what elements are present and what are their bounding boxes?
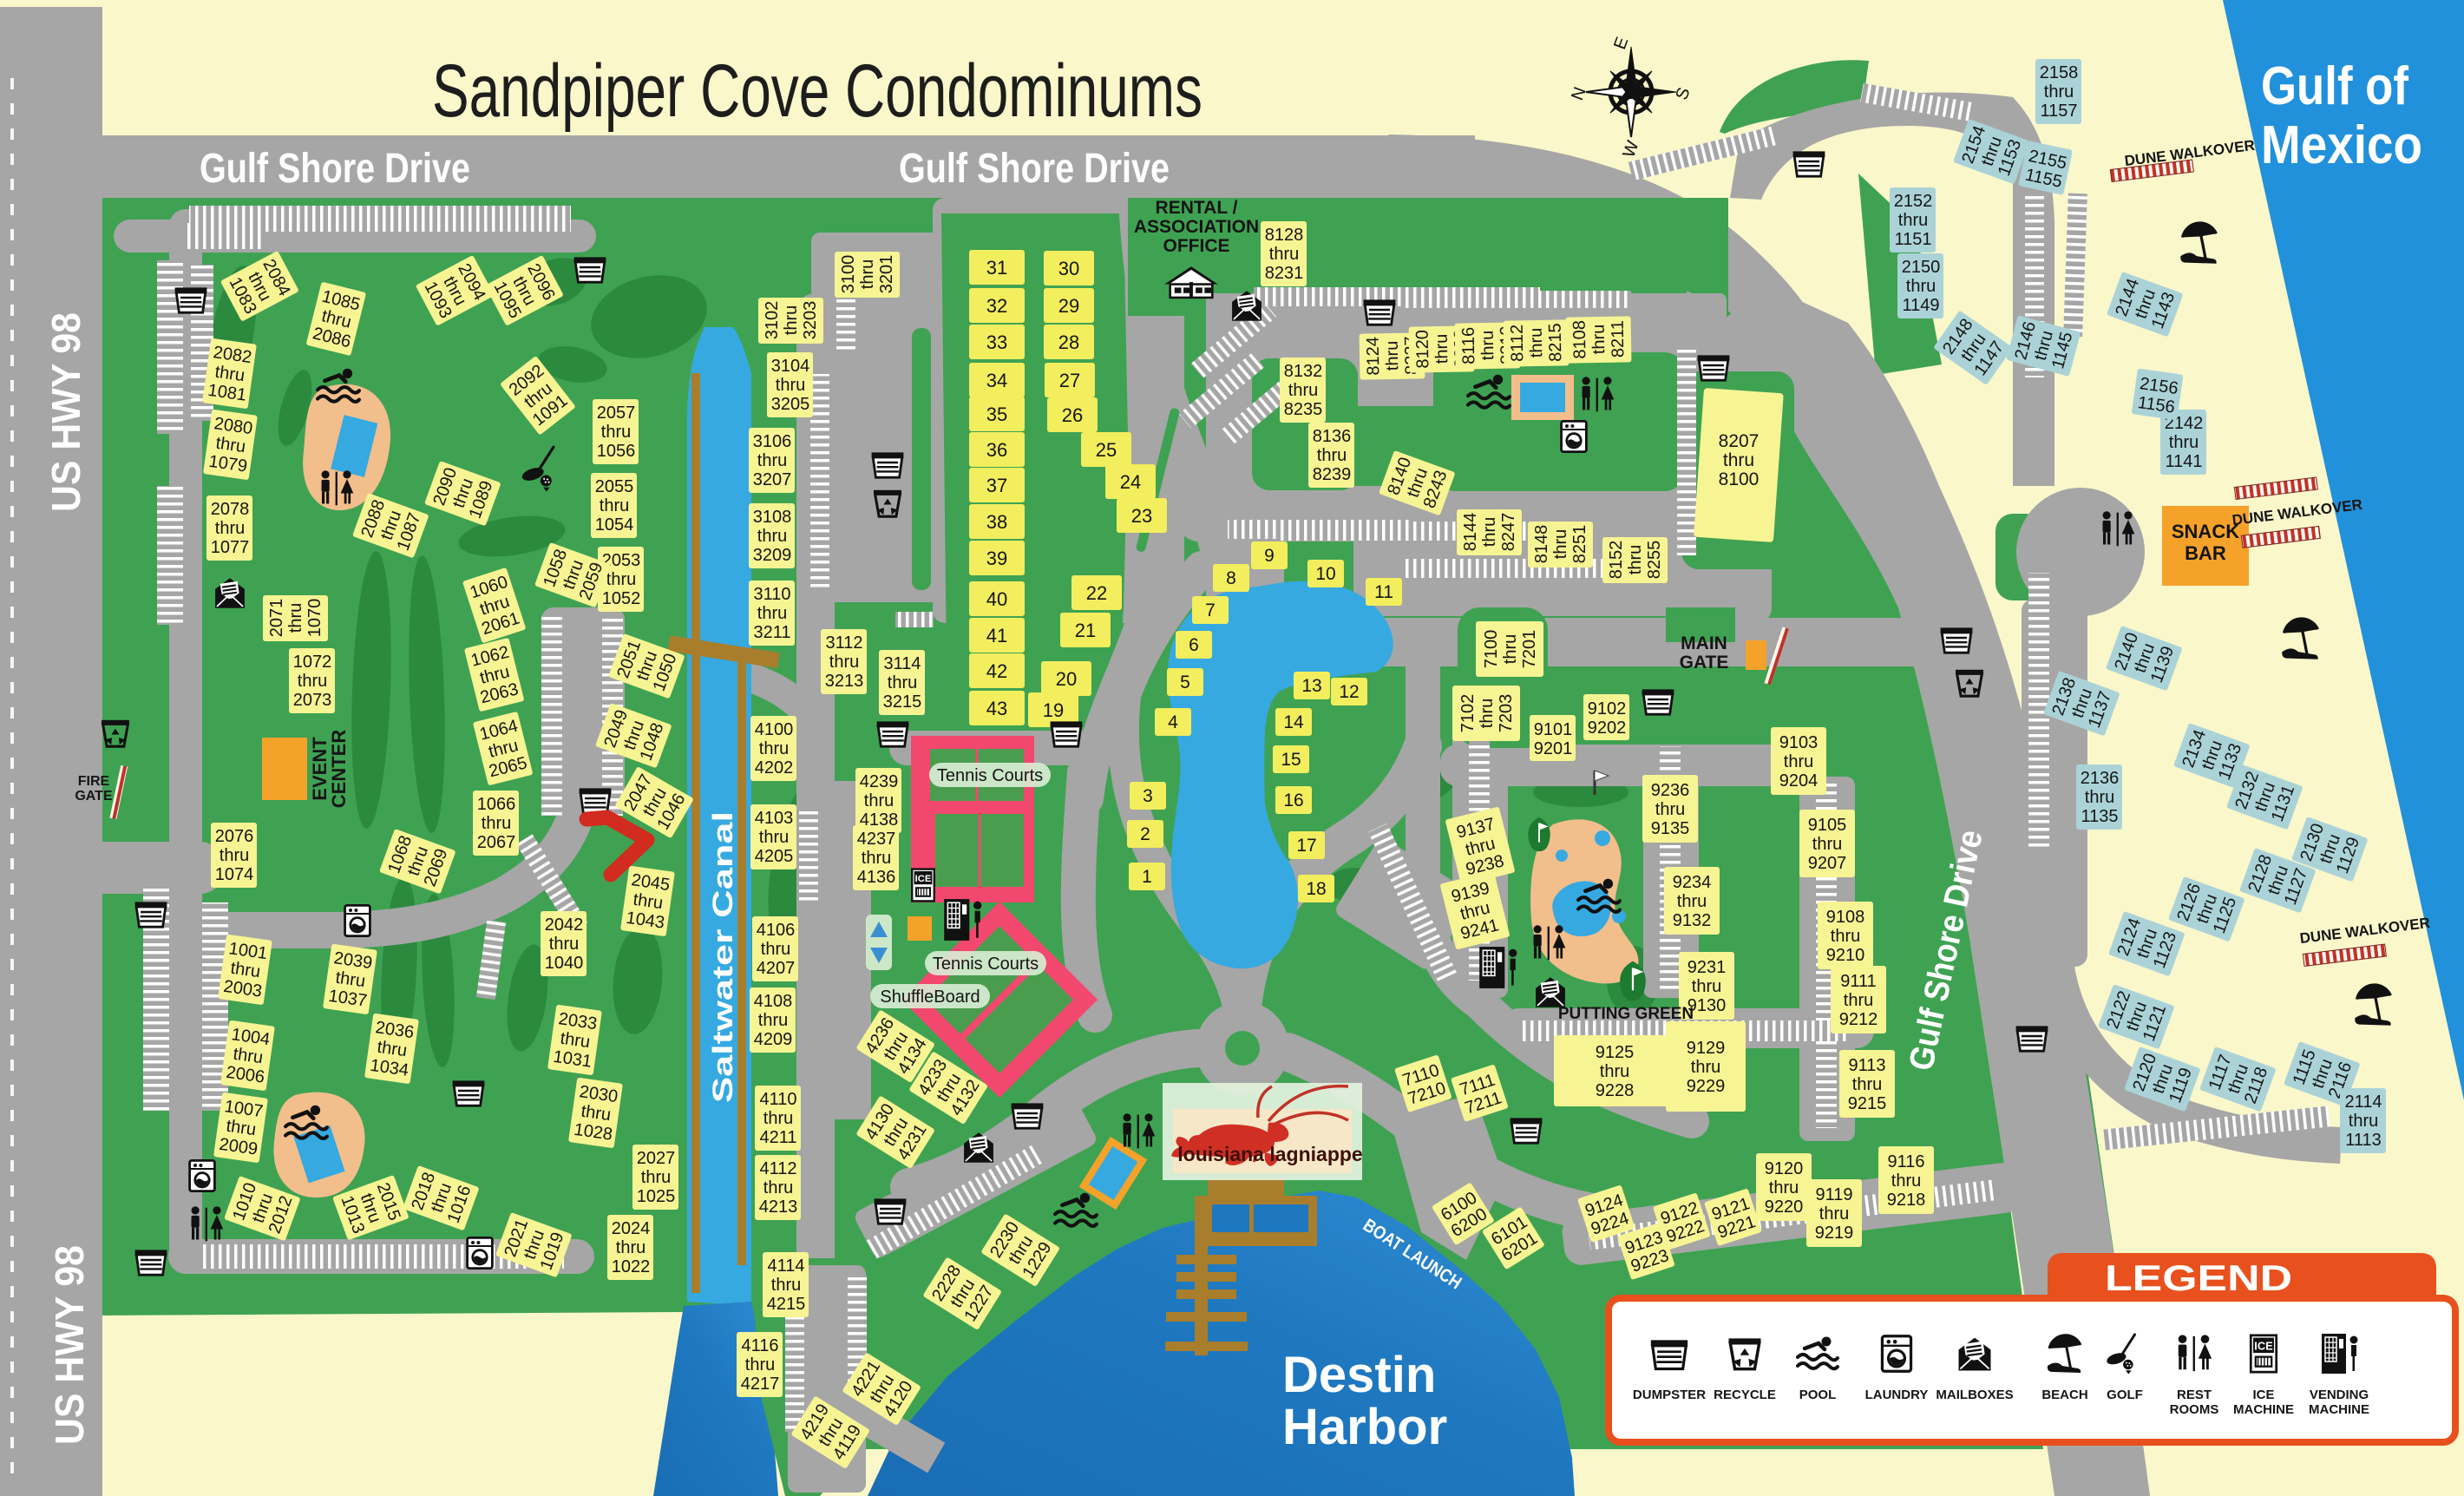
svg-text:13: 13 — [1301, 676, 1321, 696]
svg-text:3100: 3100 — [839, 255, 858, 294]
svg-text:9132: 9132 — [1673, 911, 1712, 930]
svg-text:4237: 4237 — [857, 830, 896, 849]
svg-text:3110: 3110 — [753, 585, 790, 604]
svg-text:9105: 9105 — [1808, 816, 1847, 835]
svg-text:2073: 2073 — [293, 691, 332, 710]
svg-text:1074: 1074 — [215, 865, 254, 884]
svg-text:9135: 9135 — [1651, 819, 1690, 838]
svg-text:2042: 2042 — [545, 915, 584, 935]
svg-text:9111: 9111 — [1840, 972, 1877, 991]
svg-text:4112: 4112 — [759, 1159, 796, 1178]
svg-text:thru: thru — [1288, 381, 1318, 400]
svg-text:7: 7 — [1205, 600, 1216, 620]
svg-text:14: 14 — [1283, 712, 1304, 732]
svg-text:ASSOCIATION: ASSOCIATION — [1134, 217, 1259, 237]
svg-text:4239: 4239 — [860, 772, 899, 791]
svg-text:thru: thru — [1812, 835, 1842, 854]
svg-text:3: 3 — [1143, 786, 1153, 806]
svg-text:thru: thru — [1769, 1178, 1799, 1197]
svg-text:9113: 9113 — [1848, 1056, 1885, 1075]
svg-text:thru: thru — [858, 259, 877, 289]
svg-text:2114: 2114 — [2344, 1092, 2382, 1112]
svg-text:9102: 9102 — [1588, 699, 1627, 718]
svg-text:2067: 2067 — [477, 833, 516, 852]
svg-text:Destin: Destin — [1282, 1347, 1436, 1403]
svg-text:thru: thru — [862, 849, 891, 868]
svg-text:DUMPSTER: DUMPSTER — [1633, 1388, 1706, 1402]
svg-text:thru: thru — [1891, 1171, 1921, 1191]
svg-text:4: 4 — [1168, 712, 1178, 732]
svg-text:thru: thru — [1844, 991, 1873, 1010]
svg-text:36: 36 — [986, 439, 1007, 461]
svg-text:3211: 3211 — [753, 623, 790, 642]
svg-text:thru: thru — [220, 846, 249, 865]
svg-text:thru: thru — [641, 1168, 671, 1187]
svg-text:thru: thru — [1626, 545, 1645, 574]
svg-text:3114: 3114 — [883, 654, 921, 673]
svg-text:43: 43 — [986, 698, 1007, 719]
svg-text:33: 33 — [986, 331, 1007, 353]
svg-text:thru: thru — [771, 1276, 801, 1295]
svg-text:19: 19 — [1043, 699, 1064, 721]
svg-text:thru: thru — [1655, 800, 1685, 819]
svg-text:8211: 8211 — [1609, 320, 1628, 358]
svg-text:4116: 4116 — [741, 1336, 778, 1355]
svg-text:26: 26 — [1062, 404, 1083, 426]
svg-text:thru: thru — [1501, 634, 1520, 664]
svg-text:3215: 3215 — [883, 692, 922, 712]
svg-text:thru: thru — [1692, 977, 1721, 996]
svg-text:MAIN: MAIN — [1681, 633, 1727, 653]
svg-text:3205: 3205 — [771, 395, 810, 414]
svg-text:2024: 2024 — [612, 1219, 651, 1238]
svg-text:thru: thru — [1852, 1075, 1882, 1094]
svg-text:thru: thru — [888, 673, 917, 692]
svg-text:8207: 8207 — [1719, 431, 1760, 451]
svg-text:9218: 9218 — [1887, 1191, 1926, 1210]
svg-text:RENTAL /: RENTAL / — [1156, 198, 1238, 218]
svg-text:Mexico: Mexico — [2261, 115, 2422, 175]
svg-text:thru: thru — [606, 570, 636, 589]
svg-text:1149: 1149 — [1902, 296, 1939, 315]
svg-text:thru: thru — [782, 305, 801, 335]
svg-text:thru: thru — [1784, 752, 1813, 771]
svg-text:MACHINE: MACHINE — [2233, 1402, 2294, 1417]
svg-text:9207: 9207 — [1808, 854, 1847, 873]
svg-text:Tennis Courts: Tennis Courts — [933, 955, 1039, 974]
svg-text:2027: 2027 — [637, 1149, 676, 1168]
svg-text:1072: 1072 — [293, 653, 332, 672]
svg-text:4114: 4114 — [767, 1257, 804, 1276]
svg-text:thru: thru — [1478, 699, 1497, 728]
svg-text:8152: 8152 — [1607, 541, 1626, 580]
svg-text:thru: thru — [601, 423, 631, 442]
svg-text:thru: thru — [1269, 245, 1299, 264]
svg-text:4136: 4136 — [857, 868, 896, 887]
svg-text:4205: 4205 — [755, 847, 794, 866]
svg-text:thru: thru — [1527, 328, 1547, 358]
svg-text:Gulf Shore Drive: Gulf Shore Drive — [899, 146, 1170, 192]
svg-text:thru: thru — [759, 739, 789, 758]
svg-text:20: 20 — [1056, 668, 1077, 690]
svg-text:3207: 3207 — [753, 470, 792, 489]
svg-text:2150: 2150 — [1902, 258, 1941, 277]
svg-text:42: 42 — [986, 660, 1007, 682]
svg-text:LEGEND: LEGEND — [2105, 1257, 2292, 1298]
svg-text:thru: thru — [1677, 892, 1707, 911]
svg-text:7203: 7203 — [1497, 694, 1516, 733]
svg-text:8239: 8239 — [1313, 465, 1352, 484]
svg-text:9108: 9108 — [1826, 908, 1865, 927]
svg-text:25: 25 — [1096, 439, 1117, 461]
svg-text:louisiana lagniappe: louisiana lagniappe — [1177, 1143, 1362, 1165]
svg-text:OFFICE: OFFICE — [1163, 236, 1230, 256]
svg-text:4211: 4211 — [759, 1128, 796, 1147]
svg-text:8136: 8136 — [1313, 427, 1352, 446]
svg-text:2136: 2136 — [2081, 769, 2120, 788]
svg-text:35: 35 — [986, 404, 1007, 425]
svg-text:4207: 4207 — [757, 959, 796, 978]
svg-text:thru: thru — [757, 604, 787, 623]
svg-text:4215: 4215 — [767, 1295, 806, 1314]
svg-text:1025: 1025 — [637, 1187, 676, 1206]
svg-text:15: 15 — [1281, 750, 1301, 770]
svg-text:9119: 9119 — [1815, 1185, 1852, 1204]
svg-text:Sandpiper Cove Condominums: Sandpiper Cove Condominums — [432, 49, 1203, 133]
svg-text:thru: thru — [745, 1355, 775, 1375]
svg-text:thru: thru — [1551, 529, 1570, 559]
svg-text:thru: thru — [763, 1109, 793, 1128]
svg-text:1113: 1113 — [2345, 1131, 2382, 1150]
svg-text:thru: thru — [1478, 331, 1498, 361]
svg-text:BAR: BAR — [2185, 542, 2226, 564]
svg-text:1066: 1066 — [477, 795, 516, 814]
svg-text:Gulf of: Gulf of — [2261, 56, 2408, 116]
svg-text:thru: thru — [616, 1238, 645, 1257]
svg-text:9: 9 — [1264, 546, 1275, 566]
svg-text:5: 5 — [1180, 673, 1190, 692]
svg-text:24: 24 — [1120, 471, 1141, 493]
svg-text:thru: thru — [286, 603, 305, 633]
svg-text:US HWY 98: US HWY 98 — [47, 1245, 92, 1445]
svg-text:GOLF: GOLF — [2107, 1388, 2143, 1402]
svg-text:2055: 2055 — [595, 477, 634, 496]
svg-text:2057: 2057 — [597, 404, 636, 423]
svg-text:GATE: GATE — [1680, 653, 1729, 673]
svg-text:4110: 4110 — [759, 1090, 796, 1109]
svg-text:3104: 3104 — [771, 357, 810, 376]
svg-text:ShuffleBoard: ShuffleBoard — [880, 987, 980, 1007]
svg-text:1054: 1054 — [595, 515, 634, 535]
svg-text:4202: 4202 — [755, 758, 794, 778]
svg-text:9125: 9125 — [1596, 1043, 1635, 1062]
svg-text:8: 8 — [1226, 568, 1236, 588]
svg-text:11: 11 — [1374, 582, 1393, 602]
svg-text:34: 34 — [986, 370, 1007, 391]
svg-text:8235: 8235 — [1284, 400, 1323, 419]
svg-text:thru: thru — [298, 672, 327, 691]
svg-text:REST: REST — [2177, 1388, 2212, 1402]
svg-text:1022: 1022 — [612, 1257, 651, 1276]
svg-text:thru: thru — [829, 653, 859, 672]
svg-text:Saltwater Canal: Saltwater Canal — [707, 811, 738, 1103]
svg-text:9101: 9101 — [1534, 720, 1573, 739]
svg-text:1056: 1056 — [597, 442, 636, 461]
svg-text:1052: 1052 — [602, 589, 641, 608]
svg-text:thru: thru — [1317, 446, 1347, 465]
svg-text:LAUNDRY: LAUNDRY — [1865, 1388, 1929, 1402]
svg-text:1: 1 — [1142, 867, 1152, 887]
svg-text:3201: 3201 — [877, 255, 896, 294]
svg-text:21: 21 — [1075, 620, 1096, 641]
svg-text:8112: 8112 — [1508, 325, 1528, 362]
svg-text:thru: thru — [1898, 211, 1928, 230]
svg-text:28: 28 — [1058, 331, 1079, 353]
svg-text:thru: thru — [1480, 517, 1499, 547]
svg-text:12: 12 — [1339, 682, 1359, 702]
svg-text:30: 30 — [1058, 258, 1079, 279]
svg-text:FIRE: FIRE — [78, 774, 110, 789]
svg-text:thru: thru — [776, 376, 805, 395]
svg-text:3112: 3112 — [825, 633, 862, 653]
svg-text:2: 2 — [1140, 824, 1150, 844]
svg-text:ICE: ICE — [2252, 1388, 2274, 1402]
svg-text:PUTTING GREEN: PUTTING GREEN — [1558, 1005, 1694, 1023]
svg-text:1070: 1070 — [305, 599, 324, 638]
svg-text:2078: 2078 — [211, 500, 250, 519]
svg-text:10: 10 — [1315, 564, 1335, 584]
svg-text:9234: 9234 — [1673, 873, 1712, 892]
svg-text:8215: 8215 — [1546, 323, 1566, 362]
svg-text:1040: 1040 — [545, 954, 584, 973]
svg-text:thru: thru — [482, 814, 511, 833]
svg-text:9219: 9219 — [1815, 1224, 1854, 1243]
svg-text:Tennis Courts: Tennis Courts — [937, 766, 1043, 785]
svg-text:2152: 2152 — [1894, 192, 1933, 211]
svg-text:8148: 8148 — [1532, 525, 1551, 564]
svg-text:thru: thru — [864, 791, 894, 810]
svg-text:8124: 8124 — [1364, 337, 1384, 376]
svg-text:1135: 1135 — [2081, 807, 2118, 826]
svg-text:4103: 4103 — [755, 809, 794, 828]
svg-text:4100: 4100 — [755, 720, 794, 739]
svg-text:2071: 2071 — [267, 599, 286, 638]
svg-text:9236: 9236 — [1651, 781, 1690, 800]
svg-text:2076: 2076 — [215, 827, 254, 846]
svg-text:32: 32 — [986, 295, 1007, 317]
svg-text:9220: 9220 — [1765, 1197, 1804, 1217]
svg-text:thru: thru — [1831, 927, 1860, 946]
svg-text:8231: 8231 — [1265, 264, 1304, 283]
svg-text:thru: thru — [757, 451, 787, 470]
svg-text:thru: thru — [549, 935, 579, 954]
svg-text:8120: 8120 — [1413, 330, 1433, 369]
svg-text:thru: thru — [2085, 788, 2114, 807]
svg-text:3209: 3209 — [753, 546, 792, 565]
svg-text:3102: 3102 — [763, 301, 782, 340]
svg-text:2158: 2158 — [2040, 63, 2079, 82]
svg-text:6: 6 — [1189, 635, 1199, 655]
svg-text:thru: thru — [2169, 433, 2199, 452]
svg-text:18: 18 — [1306, 879, 1326, 899]
svg-text:MACHINE: MACHINE — [2309, 1402, 2369, 1417]
svg-text:BEACH: BEACH — [2041, 1388, 2087, 1402]
svg-text:thru: thru — [1432, 334, 1452, 364]
svg-text:thru: thru — [1383, 341, 1403, 371]
svg-text:38: 38 — [986, 511, 1007, 533]
svg-text:8251: 8251 — [1570, 525, 1589, 564]
svg-text:thru: thru — [1691, 1058, 1720, 1077]
svg-text:9116: 9116 — [1887, 1152, 1924, 1171]
svg-text:37: 37 — [986, 475, 1007, 496]
svg-text:1077: 1077 — [211, 538, 250, 557]
svg-text:thru: thru — [759, 828, 789, 847]
svg-text:9201: 9201 — [1534, 739, 1573, 758]
svg-text:4213: 4213 — [759, 1197, 798, 1217]
svg-text:4209: 4209 — [754, 1030, 793, 1049]
svg-text:3213: 3213 — [825, 672, 864, 691]
svg-text:SNACK: SNACK — [2172, 521, 2239, 542]
svg-text:Harbor: Harbor — [1282, 1399, 1447, 1455]
svg-text:31: 31 — [986, 257, 1007, 279]
svg-text:9202: 9202 — [1588, 718, 1627, 738]
svg-text:thru: thru — [761, 940, 790, 959]
svg-text:thru: thru — [758, 1011, 788, 1030]
svg-text:8116: 8116 — [1459, 327, 1479, 364]
svg-text:thru: thru — [1906, 277, 1936, 296]
svg-text:9228: 9228 — [1596, 1081, 1635, 1100]
svg-text:27: 27 — [1059, 370, 1080, 391]
svg-text:1141: 1141 — [2165, 452, 2202, 471]
svg-text:CENTER: CENTER — [328, 730, 350, 809]
svg-text:9210: 9210 — [1826, 946, 1865, 965]
svg-text:9231: 9231 — [1687, 958, 1727, 977]
svg-text:3203: 3203 — [801, 301, 820, 340]
svg-text:7100: 7100 — [1482, 630, 1501, 669]
svg-text:4217: 4217 — [741, 1375, 780, 1394]
svg-text:22: 22 — [1086, 582, 1107, 604]
svg-text:8144: 8144 — [1461, 513, 1480, 552]
svg-text:4106: 4106 — [757, 921, 796, 940]
svg-text:thru: thru — [763, 1178, 793, 1197]
svg-text:thru: thru — [1589, 325, 1609, 355]
svg-text:Gulf Shore Drive: Gulf Shore Drive — [200, 146, 470, 192]
svg-text:RECYCLE: RECYCLE — [1714, 1388, 1776, 1402]
svg-text:thru: thru — [1600, 1062, 1629, 1081]
svg-text:29: 29 — [1058, 295, 1079, 317]
svg-text:thru: thru — [757, 527, 787, 546]
svg-text:9129: 9129 — [1687, 1039, 1726, 1058]
svg-text:9120: 9120 — [1765, 1159, 1804, 1178]
svg-text:8100: 8100 — [1719, 469, 1760, 489]
svg-text:39: 39 — [986, 548, 1007, 569]
svg-text:8128: 8128 — [1265, 226, 1304, 245]
svg-text:thru: thru — [1723, 450, 1754, 470]
svg-text:ROOMS: ROOMS — [2170, 1402, 2219, 1417]
svg-text:VENDING: VENDING — [2310, 1388, 2369, 1402]
svg-text:thru: thru — [215, 519, 245, 538]
svg-text:9212: 9212 — [1839, 1010, 1878, 1029]
svg-text:1151: 1151 — [1894, 230, 1931, 249]
svg-text:9215: 9215 — [1848, 1094, 1887, 1113]
svg-text:4108: 4108 — [754, 992, 793, 1011]
svg-text:8255: 8255 — [1645, 541, 1664, 580]
svg-text:7102: 7102 — [1458, 694, 1478, 733]
svg-text:8108: 8108 — [1570, 320, 1590, 359]
svg-text:9204: 9204 — [1779, 771, 1819, 791]
svg-text:23: 23 — [1131, 505, 1152, 527]
svg-text:MAILBOXES: MAILBOXES — [1936, 1388, 2013, 1402]
svg-text:16: 16 — [1283, 791, 1303, 810]
svg-text:17: 17 — [1296, 836, 1316, 856]
svg-text:thru: thru — [2349, 1112, 2378, 1131]
svg-text:3108: 3108 — [753, 508, 792, 527]
svg-text:thru: thru — [2044, 82, 2074, 102]
svg-text:POOL: POOL — [1799, 1388, 1837, 1402]
svg-text:8247: 8247 — [1499, 513, 1518, 552]
svg-text:9229: 9229 — [1687, 1077, 1726, 1096]
svg-text:7201: 7201 — [1520, 630, 1539, 669]
svg-text:thru: thru — [600, 496, 629, 515]
svg-text:41: 41 — [986, 625, 1007, 646]
svg-text:3106: 3106 — [753, 432, 792, 451]
svg-text:40: 40 — [986, 588, 1007, 610]
svg-text:1157: 1157 — [2040, 102, 2077, 121]
svg-text:GATE: GATE — [75, 789, 113, 804]
svg-text:9103: 9103 — [1779, 733, 1819, 752]
svg-text:8132: 8132 — [1284, 362, 1323, 381]
svg-text:US HWY 98: US HWY 98 — [43, 312, 88, 512]
svg-text:thru: thru — [1819, 1204, 1849, 1224]
